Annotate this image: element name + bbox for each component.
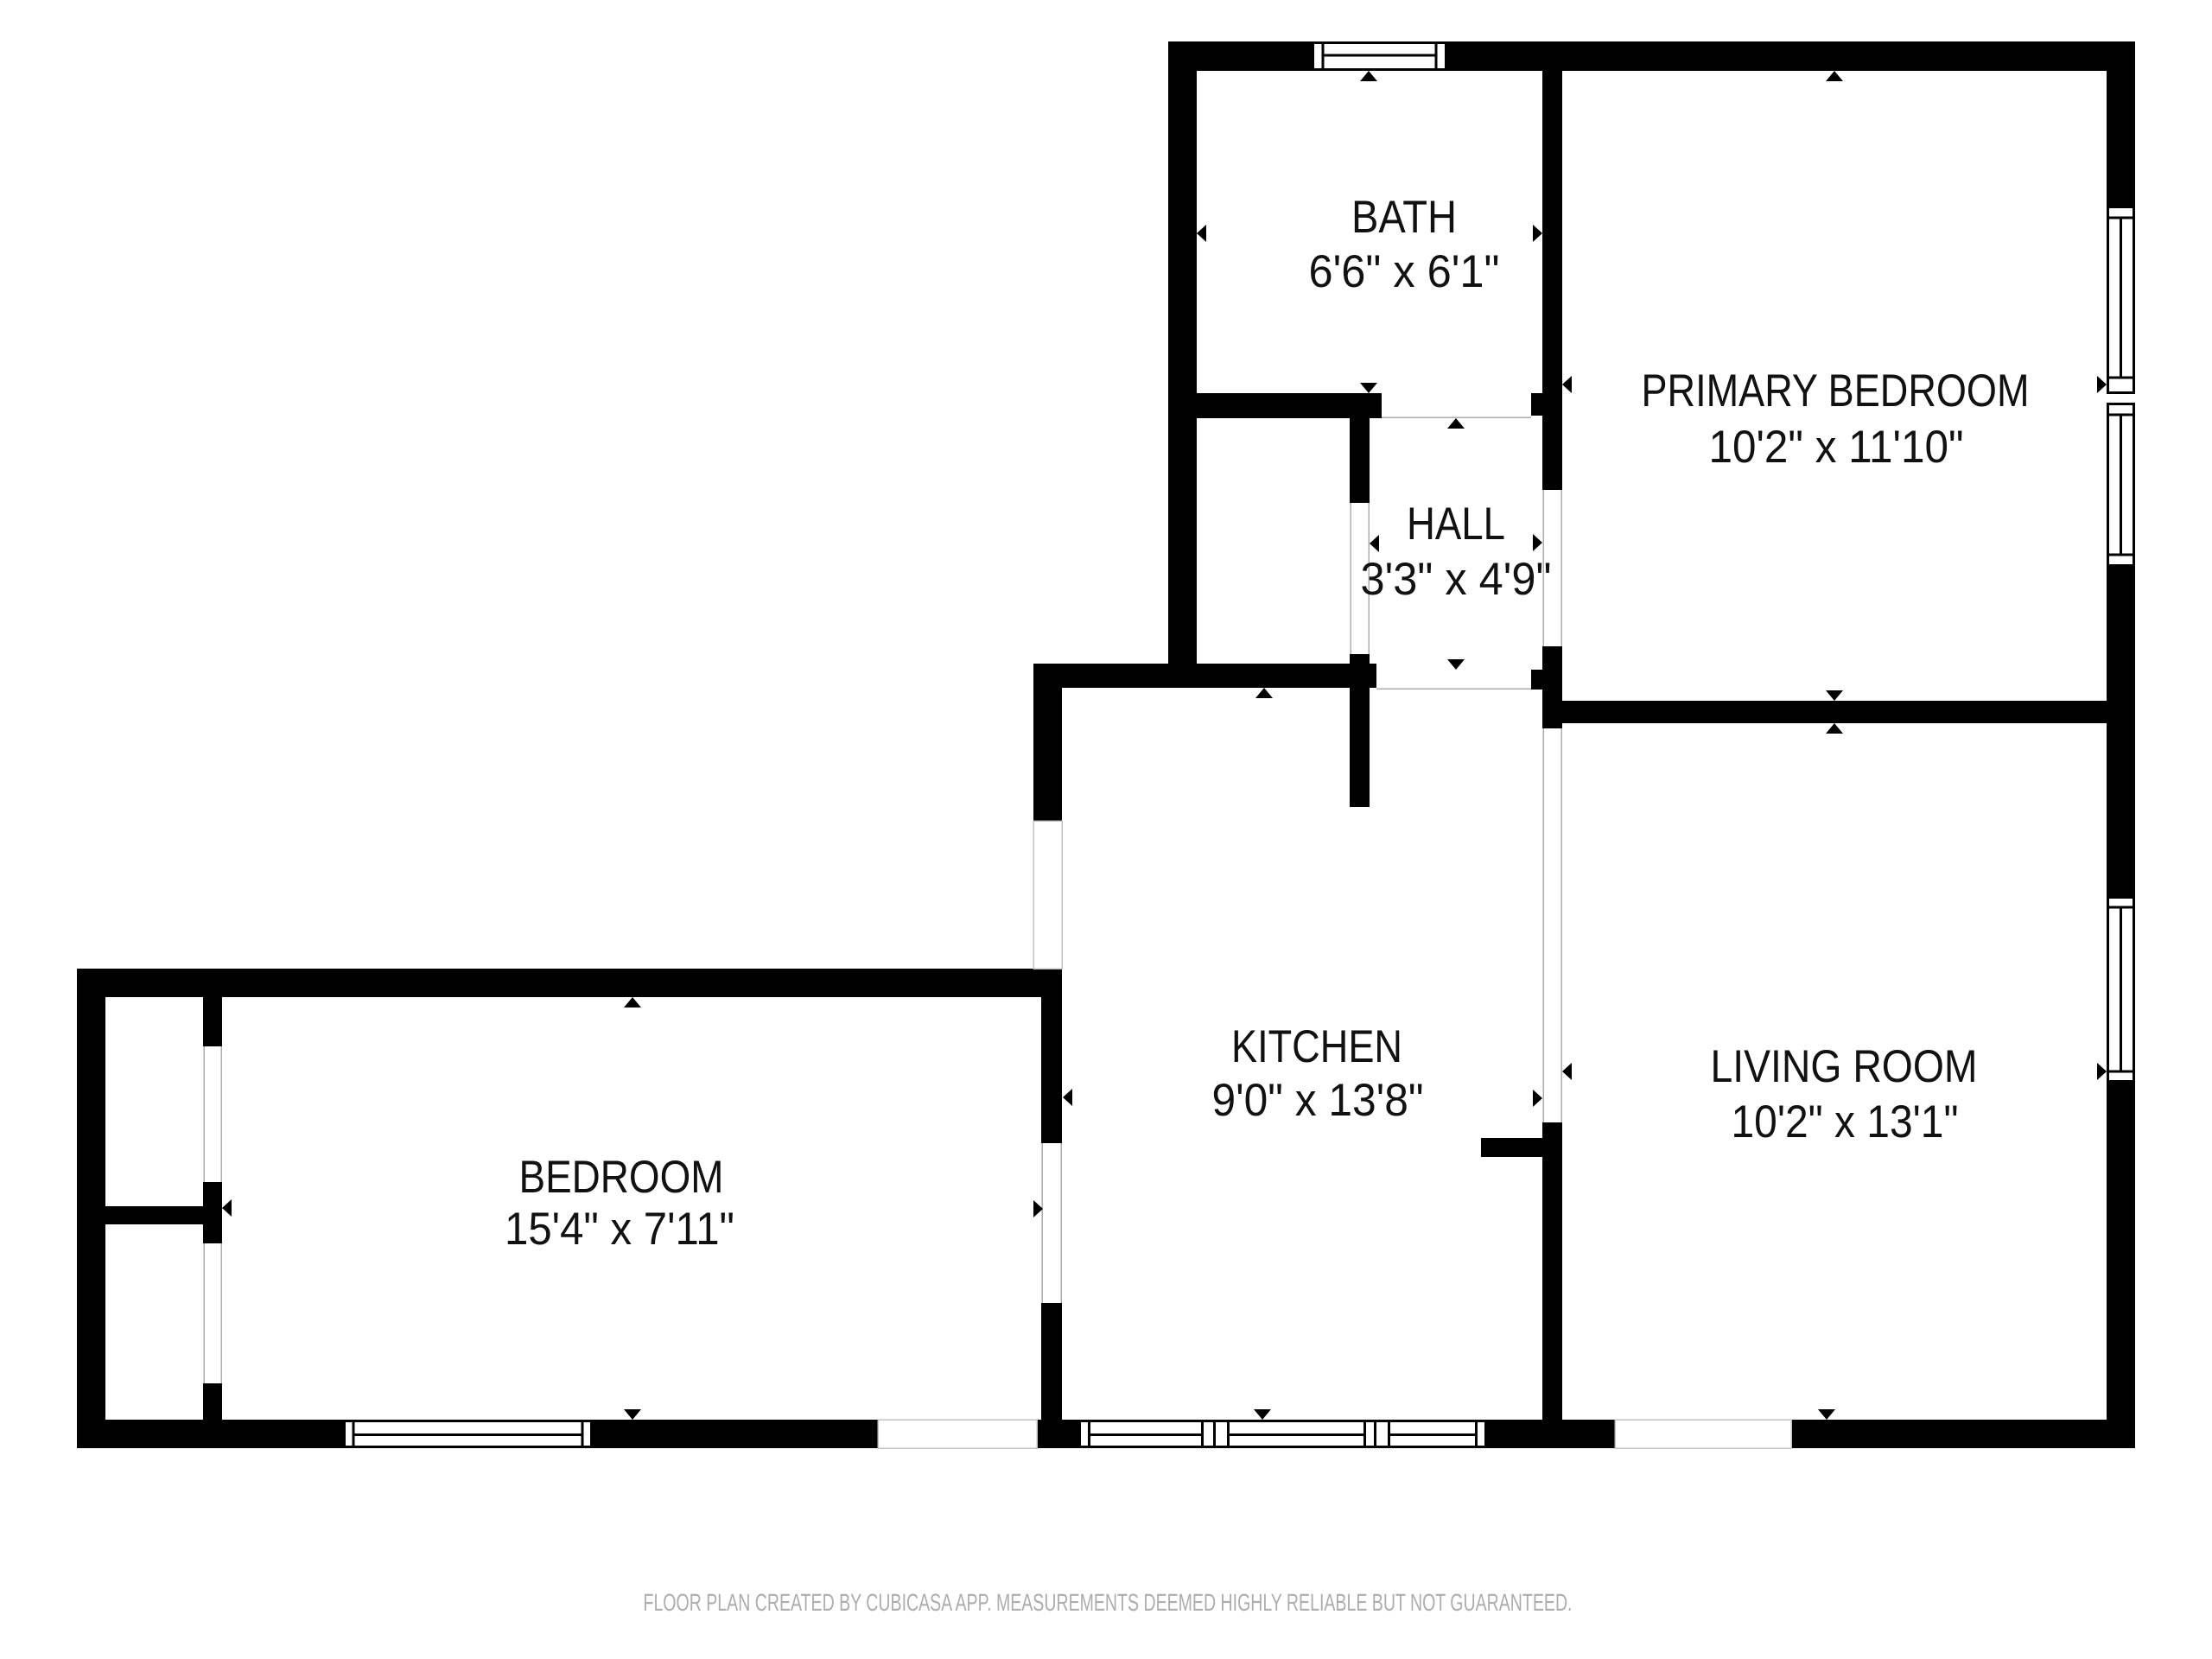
svg-text:FLOOR PLAN CREATED BY CUBICASA: FLOOR PLAN CREATED BY CUBICASA APP. MEAS… <box>644 1589 1573 1616</box>
svg-text:15'4" x 7'11": 15'4" x 7'11" <box>505 1204 734 1255</box>
svg-text:KITCHEN: KITCHEN <box>1231 1021 1402 1072</box>
svg-text:PRIMARY BEDROOM: PRIMARY BEDROOM <box>1642 365 2030 416</box>
svg-text:HALL: HALL <box>1407 499 1505 550</box>
svg-text:9'0" x 13'8": 9'0" x 13'8" <box>1212 1075 1424 1126</box>
svg-text:BATH: BATH <box>1351 192 1457 243</box>
svg-text:3'3" x 4'9": 3'3" x 4'9" <box>1361 554 1552 605</box>
svg-text:BEDROOM: BEDROOM <box>519 1152 724 1203</box>
svg-text:10'2" x 11'10": 10'2" x 11'10" <box>1709 422 1964 473</box>
svg-text:LIVING ROOM: LIVING ROOM <box>1711 1041 1978 1092</box>
svg-text:6'6" x 6'1": 6'6" x 6'1" <box>1309 246 1500 297</box>
svg-text:10'2" x 13'1": 10'2" x 13'1" <box>1732 1096 1959 1147</box>
